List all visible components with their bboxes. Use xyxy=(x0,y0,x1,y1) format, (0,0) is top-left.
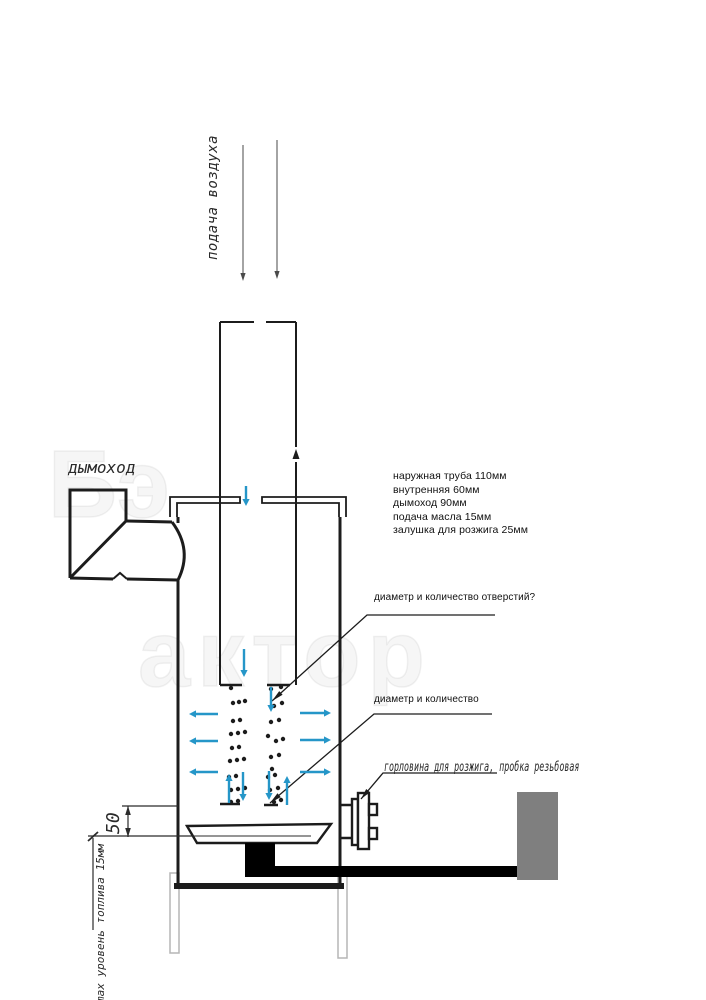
ignition-port-label: горловина для розжига, пробка резьбовая xyxy=(384,760,579,775)
waste-oil-burner-diagram: Бэ актор xyxy=(0,0,706,1000)
spec-oil-feed: подача масла 15мм xyxy=(393,511,528,525)
pipe-break-arrow-icon xyxy=(293,449,300,459)
top-lid xyxy=(170,497,346,517)
spec-plug: залушка для розжига 25мм xyxy=(393,524,528,538)
dimension-50-label: 50 xyxy=(103,812,124,834)
ignition-port xyxy=(340,793,377,849)
holes-question-top-label: диаметр и количество отверстий? xyxy=(374,592,535,603)
oil-pan xyxy=(187,824,331,843)
holes-question-bottom-label: диаметр и количество xyxy=(374,694,479,705)
flame-flow-arrows xyxy=(189,486,331,805)
spec-inner-pipe: внутренняя 60мм xyxy=(393,484,528,498)
spec-chimney: дымоход 90мм xyxy=(393,497,528,511)
burner-holes xyxy=(227,685,285,804)
air-flow-arrows xyxy=(240,140,279,281)
oil-tank xyxy=(517,792,558,880)
air-supply-label: подача воздуха xyxy=(205,135,221,260)
spec-outer-pipe: наружная труба 110мм xyxy=(393,470,528,484)
chimney-label: дымоход xyxy=(68,458,135,477)
oil-supply-pipe xyxy=(245,843,517,877)
leader-arrowheads xyxy=(270,691,370,803)
chimney-duct xyxy=(70,490,184,580)
pipe-specs-block: наружная труба 110мм внутренняя 60мм дым… xyxy=(393,470,528,538)
max-fuel-level-label: max уровень топлива 15мм xyxy=(94,844,107,1000)
